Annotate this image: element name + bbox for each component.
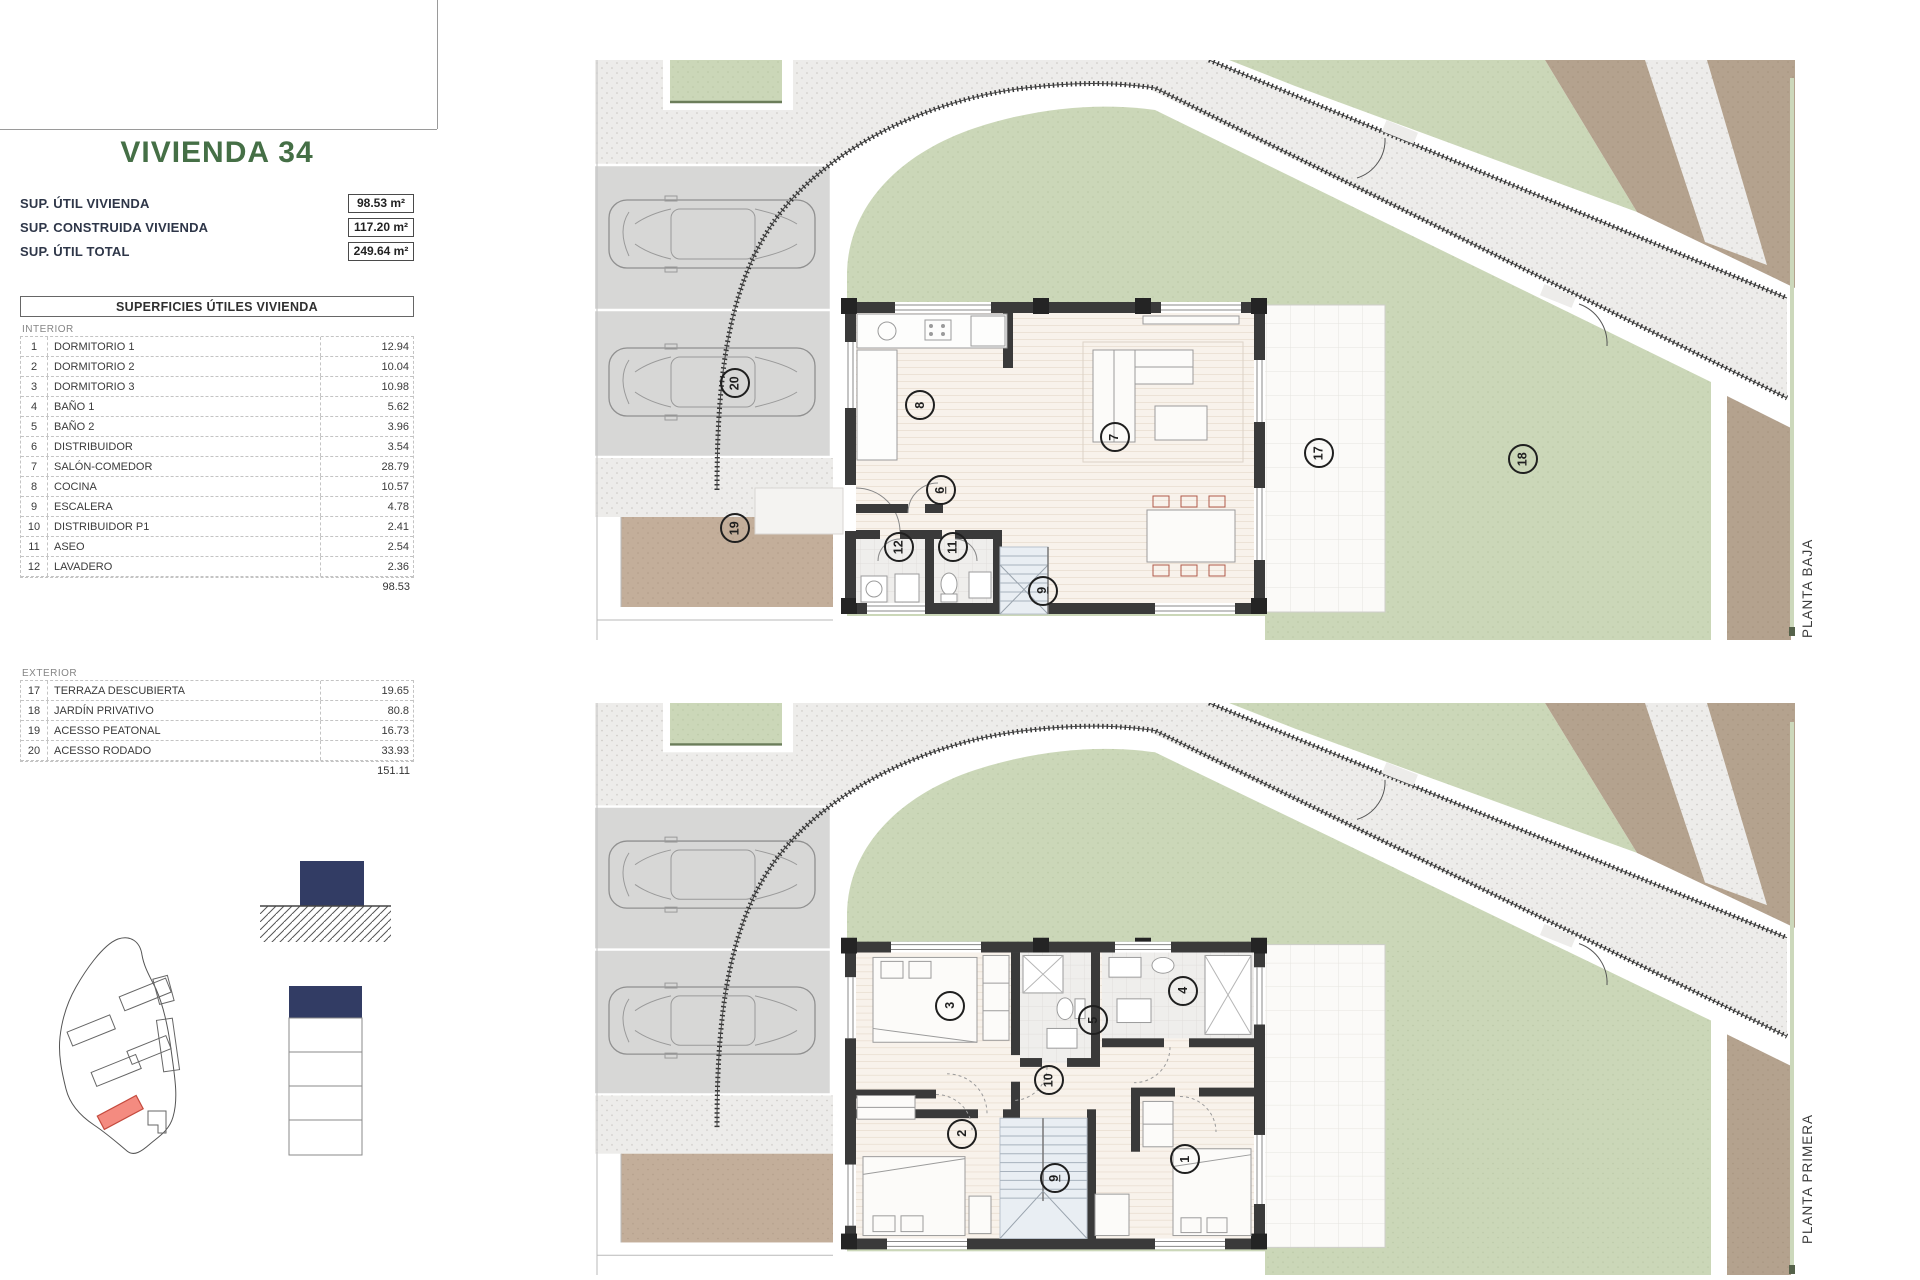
table-row: 7 SALÓN-COMEDOR 28.79 xyxy=(21,457,413,477)
table-row: 8 COCINA 10.57 xyxy=(21,477,413,497)
table-row: 10 DISTRIBUIDOR P1 2.41 xyxy=(21,517,413,537)
summary-row: SUP. ÚTIL VIVIENDA 98.53 m² xyxy=(20,191,414,215)
room-name-cell: DORMITORIO 2 xyxy=(48,357,321,376)
room-number-cell: 3 xyxy=(21,377,48,396)
room-area-cell: 19.65 xyxy=(321,685,413,697)
room-name-cell: JARDÍN PRIVATIVO xyxy=(48,701,321,720)
room-name-cell: TERRAZA DESCUBIERTA xyxy=(48,681,321,700)
room-name-cell: COCINA xyxy=(48,477,321,496)
summary-label: SUP. ÚTIL VIVIENDA xyxy=(20,196,150,211)
room-area-cell: 2.41 xyxy=(321,521,413,533)
room-number-badge: 8 xyxy=(905,390,935,420)
summary-row: SUP. CONSTRUIDA VIVIENDA 117.20 m² xyxy=(20,215,414,239)
room-number: 2 xyxy=(956,1130,969,1137)
table-row: 11 ASEO 2.54 xyxy=(21,537,413,557)
room-area-cell: 10.98 xyxy=(321,381,413,393)
room-number-badge: 11 xyxy=(938,532,968,562)
room-name-cell: DORMITORIO 1 xyxy=(48,337,321,356)
room-number-cell: 2 xyxy=(21,357,48,376)
sheet-frame-vertical xyxy=(437,0,438,129)
room-number-cell: 11 xyxy=(21,537,48,556)
plan-planta-baja: 8 7 6 9 11 12 xyxy=(595,60,1795,640)
summary-value: 249.64 m² xyxy=(348,242,414,261)
room-name-cell: BAÑO 2 xyxy=(48,417,321,436)
room-name-cell: DORMITORIO 3 xyxy=(48,377,321,396)
table-row: 3 DORMITORIO 3 10.98 xyxy=(21,377,413,397)
room-number-badge: 7 xyxy=(1100,422,1130,452)
room-number: 5 xyxy=(1087,1017,1100,1024)
plan-title-baja: PLANTA BAJA xyxy=(1800,539,1815,638)
room-number-cell: 6 xyxy=(21,437,48,456)
room-area-cell: 10.57 xyxy=(321,481,413,493)
room-number-badge: 12 xyxy=(884,532,914,562)
room-number: 4 xyxy=(1177,987,1190,994)
table-row: 4 BAÑO 1 5.62 xyxy=(21,397,413,417)
room-number-badge: 20 xyxy=(720,368,750,398)
room-name-cell: SALÓN-COMEDOR xyxy=(48,457,321,476)
room-number: 19 xyxy=(729,521,742,535)
room-number-cell: 1 xyxy=(21,337,48,356)
room-area-cell: 3.96 xyxy=(321,421,413,433)
table-row: 18 JARDÍN PRIVATIVO 80.8 xyxy=(21,701,413,721)
room-name-cell: LAVADERO xyxy=(48,557,321,576)
plan-edge-strip xyxy=(1790,722,1794,1274)
surfaces-table-interior: SUPERFICIES ÚTILES VIVIENDA INTERIOR 1 D… xyxy=(20,296,414,593)
room-number-cell: 7 xyxy=(21,457,48,476)
room-name-cell: DISTRIBUIDOR P1 xyxy=(48,517,321,536)
surface-summary: SUP. ÚTIL VIVIENDA 98.53 m² SUP. CONSTRU… xyxy=(20,191,414,263)
summary-value: 98.53 m² xyxy=(348,194,414,213)
room-area-cell: 10.04 xyxy=(321,361,413,373)
room-number: 17 xyxy=(1312,446,1325,460)
room-area-cell: 2.36 xyxy=(321,561,413,573)
room-name-cell: ACESSO RODADO xyxy=(48,741,321,760)
room-number-cell: 8 xyxy=(21,477,48,496)
room-number-cell: 10 xyxy=(21,517,48,536)
exterior-total: 151.11 xyxy=(20,762,414,777)
room-number-badge: 18 xyxy=(1508,444,1538,474)
room-number: 7 xyxy=(1108,434,1121,441)
room-number: 18 xyxy=(1516,452,1529,466)
table-row: 20 ACESSO RODADO 33.93 xyxy=(21,741,413,761)
room-labels-baja: 8 7 6 9 11 12 xyxy=(595,60,1795,640)
room-area-cell: 3.54 xyxy=(321,441,413,453)
room-area-cell: 12.94 xyxy=(321,341,413,353)
room-number-badge: 6 xyxy=(926,475,956,505)
sheet-frame-horizontal xyxy=(0,129,437,130)
room-number-cell: 20 xyxy=(21,741,48,760)
table-row: 6 DISTRIBUIDOR 3.54 xyxy=(21,437,413,457)
page-title: VIVIENDA 34 xyxy=(20,136,414,170)
room-number-badge: 9 xyxy=(1040,1163,1070,1193)
plan-edge-strip xyxy=(1790,78,1794,636)
room-number: 3 xyxy=(944,1002,957,1009)
table-row: 17 TERRAZA DESCUBIERTA 19.65 xyxy=(21,681,413,701)
section-label: EXTERIOR xyxy=(22,668,414,679)
room-number-badge: 9 xyxy=(1028,576,1058,606)
section-diagram xyxy=(260,858,395,948)
surfaces-table-exterior: EXTERIOR 17 TERRAZA DESCUBIERTA 19.65 18… xyxy=(20,668,414,777)
room-name-cell: ACESSO PEATONAL xyxy=(48,721,321,740)
room-area-cell: 33.93 xyxy=(321,745,413,757)
room-number: 20 xyxy=(729,376,742,390)
table-row: 5 BAÑO 2 3.96 xyxy=(21,417,413,437)
room-area-cell: 5.62 xyxy=(321,401,413,413)
plan-title-primera: PLANTA PRIMERA xyxy=(1800,1114,1815,1244)
summary-row: SUP. ÚTIL TOTAL 249.64 m² xyxy=(20,239,414,263)
table-row: 12 LAVADERO 2.36 xyxy=(21,557,413,577)
room-number: 9 xyxy=(1048,1175,1061,1182)
room-number-badge: 10 xyxy=(1034,1065,1064,1095)
table-row: 19 ACESSO PEATONAL 16.73 xyxy=(21,721,413,741)
floor-stack-legend xyxy=(288,986,364,1156)
table-row: 9 ESCALERA 4.78 xyxy=(21,497,413,517)
room-number-badge: 3 xyxy=(935,991,965,1021)
room-area-cell: 80.8 xyxy=(321,705,413,717)
summary-value: 117.20 m² xyxy=(348,218,414,237)
room-number: 9 xyxy=(1036,587,1049,594)
room-name-cell: ESCALERA xyxy=(48,497,321,516)
room-number: 10 xyxy=(1042,1073,1055,1087)
room-area-cell: 16.73 xyxy=(321,725,413,737)
room-name-cell: BAÑO 1 xyxy=(48,397,321,416)
room-number-badge: 2 xyxy=(947,1119,977,1149)
room-number-cell: 19 xyxy=(21,721,48,740)
interior-total: 98.53 xyxy=(20,578,414,593)
room-number-badge: 4 xyxy=(1168,976,1198,1006)
room-area-cell: 2.54 xyxy=(321,541,413,553)
site-location-map xyxy=(40,935,205,1170)
room-number-cell: 4 xyxy=(21,397,48,416)
floorplan-sheet: VIVIENDA 34 SUP. ÚTIL VIVIENDA 98.53 m² … xyxy=(0,0,1920,1280)
room-number-cell: 17 xyxy=(21,681,48,700)
room-number-cell: 5 xyxy=(21,417,48,436)
table-row: 2 DORMITORIO 2 10.04 xyxy=(21,357,413,377)
room-number-badge: 19 xyxy=(720,513,750,543)
summary-label: SUP. CONSTRUIDA VIVIENDA xyxy=(20,220,208,235)
room-number: 11 xyxy=(946,541,959,554)
room-number-cell: 9 xyxy=(21,497,48,516)
table-row: 1 DORMITORIO 1 12.94 xyxy=(21,337,413,357)
room-number: 1 xyxy=(1179,1155,1192,1162)
room-number: 12 xyxy=(892,540,905,554)
room-number: 8 xyxy=(914,402,927,409)
plan-planta-primera: 3 5 4 10 2 1 xyxy=(595,703,1795,1275)
room-area-cell: 4.78 xyxy=(321,501,413,513)
section-label: INTERIOR xyxy=(22,324,414,335)
room-number-badge: 17 xyxy=(1304,438,1334,468)
summary-label: SUP. ÚTIL TOTAL xyxy=(20,244,130,259)
room-area-cell: 28.79 xyxy=(321,461,413,473)
room-number-badge: 1 xyxy=(1170,1144,1200,1174)
room-name-cell: ASEO xyxy=(48,537,321,556)
room-labels-primera: 3 5 4 10 2 1 xyxy=(595,703,1795,1275)
room-number: 6 xyxy=(934,486,947,493)
table-header: SUPERFICIES ÚTILES VIVIENDA xyxy=(20,296,414,317)
room-number-cell: 18 xyxy=(21,701,48,720)
room-number-cell: 12 xyxy=(21,557,48,576)
room-number-badge: 5 xyxy=(1078,1005,1108,1035)
room-name-cell: DISTRIBUIDOR xyxy=(48,437,321,456)
